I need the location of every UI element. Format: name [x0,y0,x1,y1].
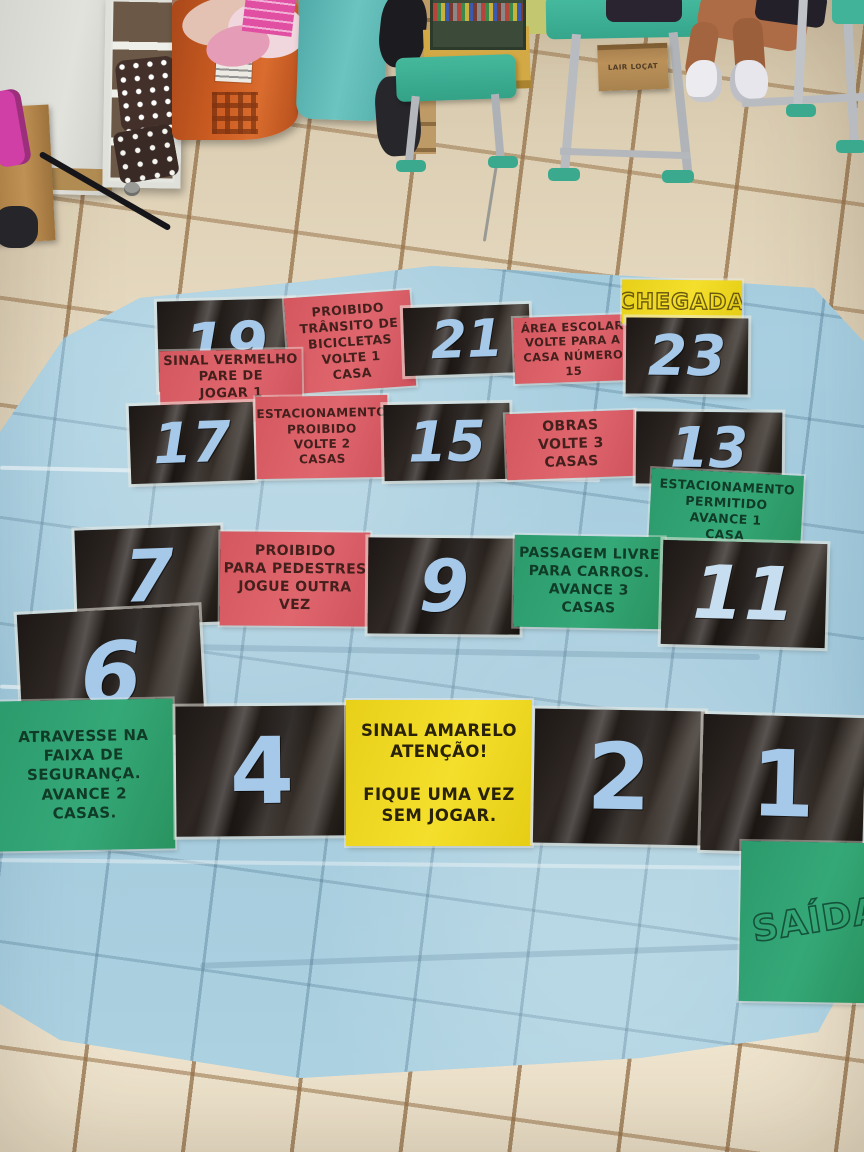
board-cell-4: 4 [175,705,348,836]
cell-number: 21 [430,309,504,371]
cell-number: 17 [152,409,232,477]
chair-left-leg [491,94,505,164]
chair-right-foot [836,140,864,153]
pink-box [242,0,297,37]
board-cell-2: 2 [533,709,705,846]
board-cell-21: 21 [403,304,531,376]
board-cell-1: 1 [700,714,864,854]
chair-center-foot [548,168,580,181]
chair-left-foot [396,160,426,172]
polka-dot-basket-bottom [112,123,180,185]
card-area-escolar: ÁREA ESCOLAR VOLTE PARA A CASA NÚMERO 15 [513,314,633,384]
shelf-caster-wheel [124,182,140,196]
cardboard-box-label: LAIR LOÇAT [608,62,659,72]
barrel-dot-pattern [212,92,258,134]
dark-object-under-bench [0,206,38,248]
chair-left-foot [488,156,518,168]
chair-center-crossbar [560,148,690,160]
board-cell-17: 17 [129,402,256,484]
board-cell-23: 23 [626,317,749,394]
cell-number: 9 [419,544,470,628]
card-passagem-livre: PASSAGEM LIVRE PARA CARROS. AVANCE 3 CAS… [513,535,665,630]
board-cell-11: 11 [661,540,828,648]
card-proibido-pedestres: PROIBIDO PARA PEDESTRES JOGUE OUTRA VEZ [220,531,371,626]
classroom-board-game-photo: LAIR LOÇAT 19 PROIBIDO TRÂNSITO DE BICIC… [0,0,864,1152]
chair-right-seat-corner [832,0,864,24]
cell-number: 11 [691,550,796,639]
start-card-saida: SAÍDA [739,841,864,1003]
cell-number: 4 [230,717,295,825]
cell-number: 1 [750,730,817,839]
card-atravesse-faixa: ATRAVESSE NA FAIXA DE SEGURANÇA. AVANCE … [0,698,175,851]
white-sneaker [686,60,722,102]
cardboard-box: LAIR LOÇAT [597,43,669,91]
card-estacionamento-proibido: ESTACIONAMENTO PROIBIDO VOLTE 2 CASAS [255,395,388,479]
board-cell-9: 9 [368,537,521,634]
chair-right-foot [786,104,816,117]
cell-number: 2 [586,723,652,831]
object-on-chair [606,0,682,22]
board-cell-15: 15 [383,403,510,481]
card-proibido-transito-bicicletas: PROIBIDO TRÂNSITO DE BICICLETAS VOLTE 1 … [284,290,416,395]
card-sinal-amarelo: SINAL AMARELO ATENÇÃO! FIQUE UMA VEZ SEM… [346,700,532,846]
pencil-crate [430,0,526,50]
cell-number: 23 [648,323,727,389]
chair-center-foot [662,170,694,183]
card-obras: OBRAS VOLTE 3 CASAS [505,410,637,480]
cell-number: 15 [407,409,486,475]
